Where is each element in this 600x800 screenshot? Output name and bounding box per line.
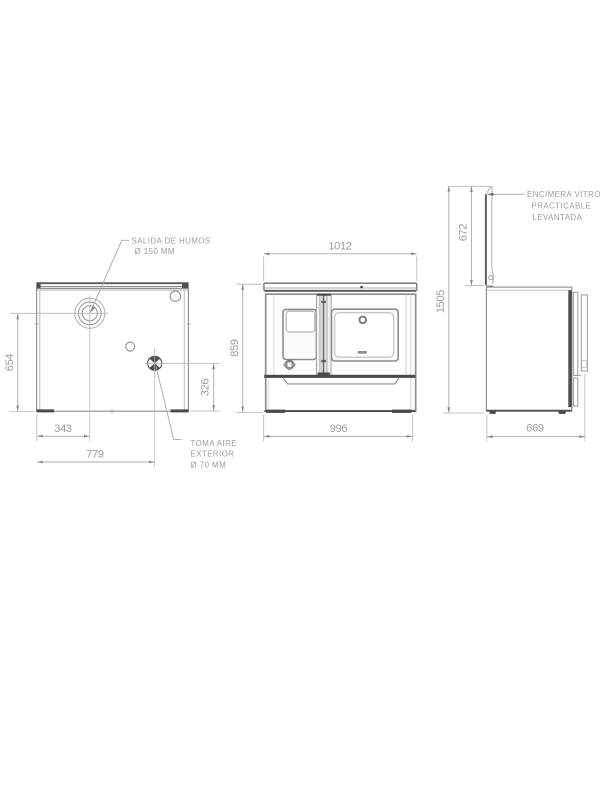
- svg-text:EXTERIOR: EXTERIOR: [191, 450, 235, 459]
- svg-text:1012: 1012: [328, 241, 351, 253]
- svg-text:1505: 1505: [435, 290, 447, 313]
- svg-text:ENCIMERA VITRO: ENCIMERA VITRO: [527, 190, 600, 199]
- svg-text:LEVANTADA: LEVANTADA: [533, 213, 583, 222]
- svg-text:669: 669: [526, 423, 544, 435]
- svg-text:779: 779: [86, 449, 104, 461]
- svg-text:326: 326: [200, 379, 212, 397]
- svg-text:PRACTICABLE: PRACTICABLE: [532, 202, 592, 211]
- svg-text:TOMA AIRE: TOMA AIRE: [191, 439, 237, 448]
- svg-text:672: 672: [457, 224, 469, 242]
- svg-text:996: 996: [330, 423, 348, 435]
- svg-text:Ø 150 MM: Ø 150 MM: [135, 247, 175, 256]
- svg-text:SALIDA DE HUMOS: SALIDA DE HUMOS: [132, 236, 211, 245]
- svg-text:859: 859: [229, 339, 241, 357]
- svg-text:Ø 70 MM: Ø 70 MM: [191, 460, 227, 469]
- svg-text:343: 343: [54, 423, 72, 435]
- svg-text:654: 654: [4, 354, 16, 372]
